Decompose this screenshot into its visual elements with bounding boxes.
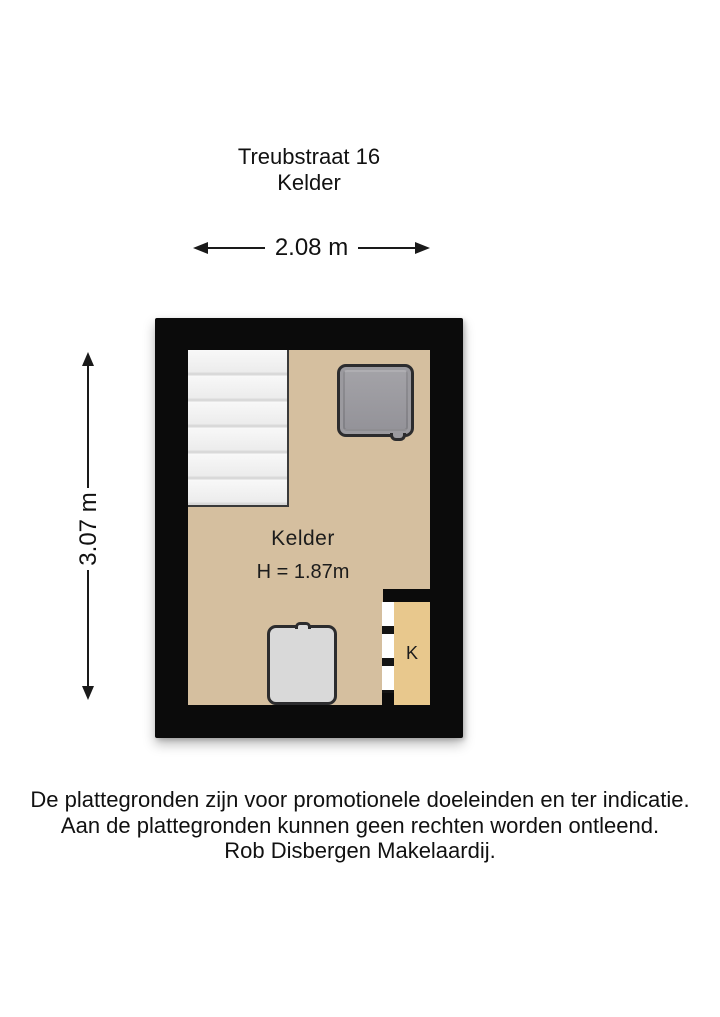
disclaimer-line: Rob Disbergen Makelaardij. [0, 838, 720, 864]
dimension-line [208, 247, 265, 249]
width-dimension-label: 2.08 m [265, 234, 358, 262]
disclaimer-line: De plattegronden zijn voor promotionele … [0, 787, 720, 813]
stairs-fixture [188, 350, 289, 507]
washer-boiler-fixture [337, 364, 414, 437]
disclaimer-line: Aan de plattegronden kunnen geen rechten… [0, 813, 720, 839]
ceiling-height-label: H = 1.87m [188, 561, 418, 584]
dimension-line [87, 364, 89, 488]
floor-title: Kelder [155, 170, 463, 196]
page-title: Treubstraat 16 Kelder [155, 144, 463, 196]
floorplan-walls: Kelder H = 1.87m K [155, 318, 463, 738]
closet-label: K [406, 643, 418, 664]
dimension-line [358, 247, 415, 249]
closet-wall-stub [382, 693, 394, 705]
room-name-label: Kelder [188, 527, 418, 551]
closet-room: K [394, 602, 430, 705]
floorplan-page: Treubstraat 16 Kelder 2.08 m 3.07 m Keld… [0, 0, 720, 1017]
closet-wall-segment [383, 589, 430, 602]
dimension-arrow-down-icon [82, 686, 94, 700]
width-dimension: 2.08 m [193, 235, 430, 261]
dimension-arrow-right-icon [415, 242, 430, 254]
washer-lid-detail [343, 370, 408, 431]
height-dimension-label: 3.07 m [76, 488, 102, 570]
washer-handle-detail [390, 433, 406, 441]
address-title: Treubstraat 16 [155, 144, 463, 170]
closet-dashed-partition [382, 602, 394, 693]
height-dimension: 3.07 m [74, 352, 104, 700]
freezer-hinge-detail [295, 622, 311, 629]
dimension-arrow-left-icon [193, 242, 208, 254]
basement-room: Kelder H = 1.87m K [188, 350, 430, 705]
dimension-line [87, 570, 89, 688]
freezer-fixture [267, 625, 337, 705]
disclaimer: De plattegronden zijn voor promotionele … [0, 787, 720, 864]
